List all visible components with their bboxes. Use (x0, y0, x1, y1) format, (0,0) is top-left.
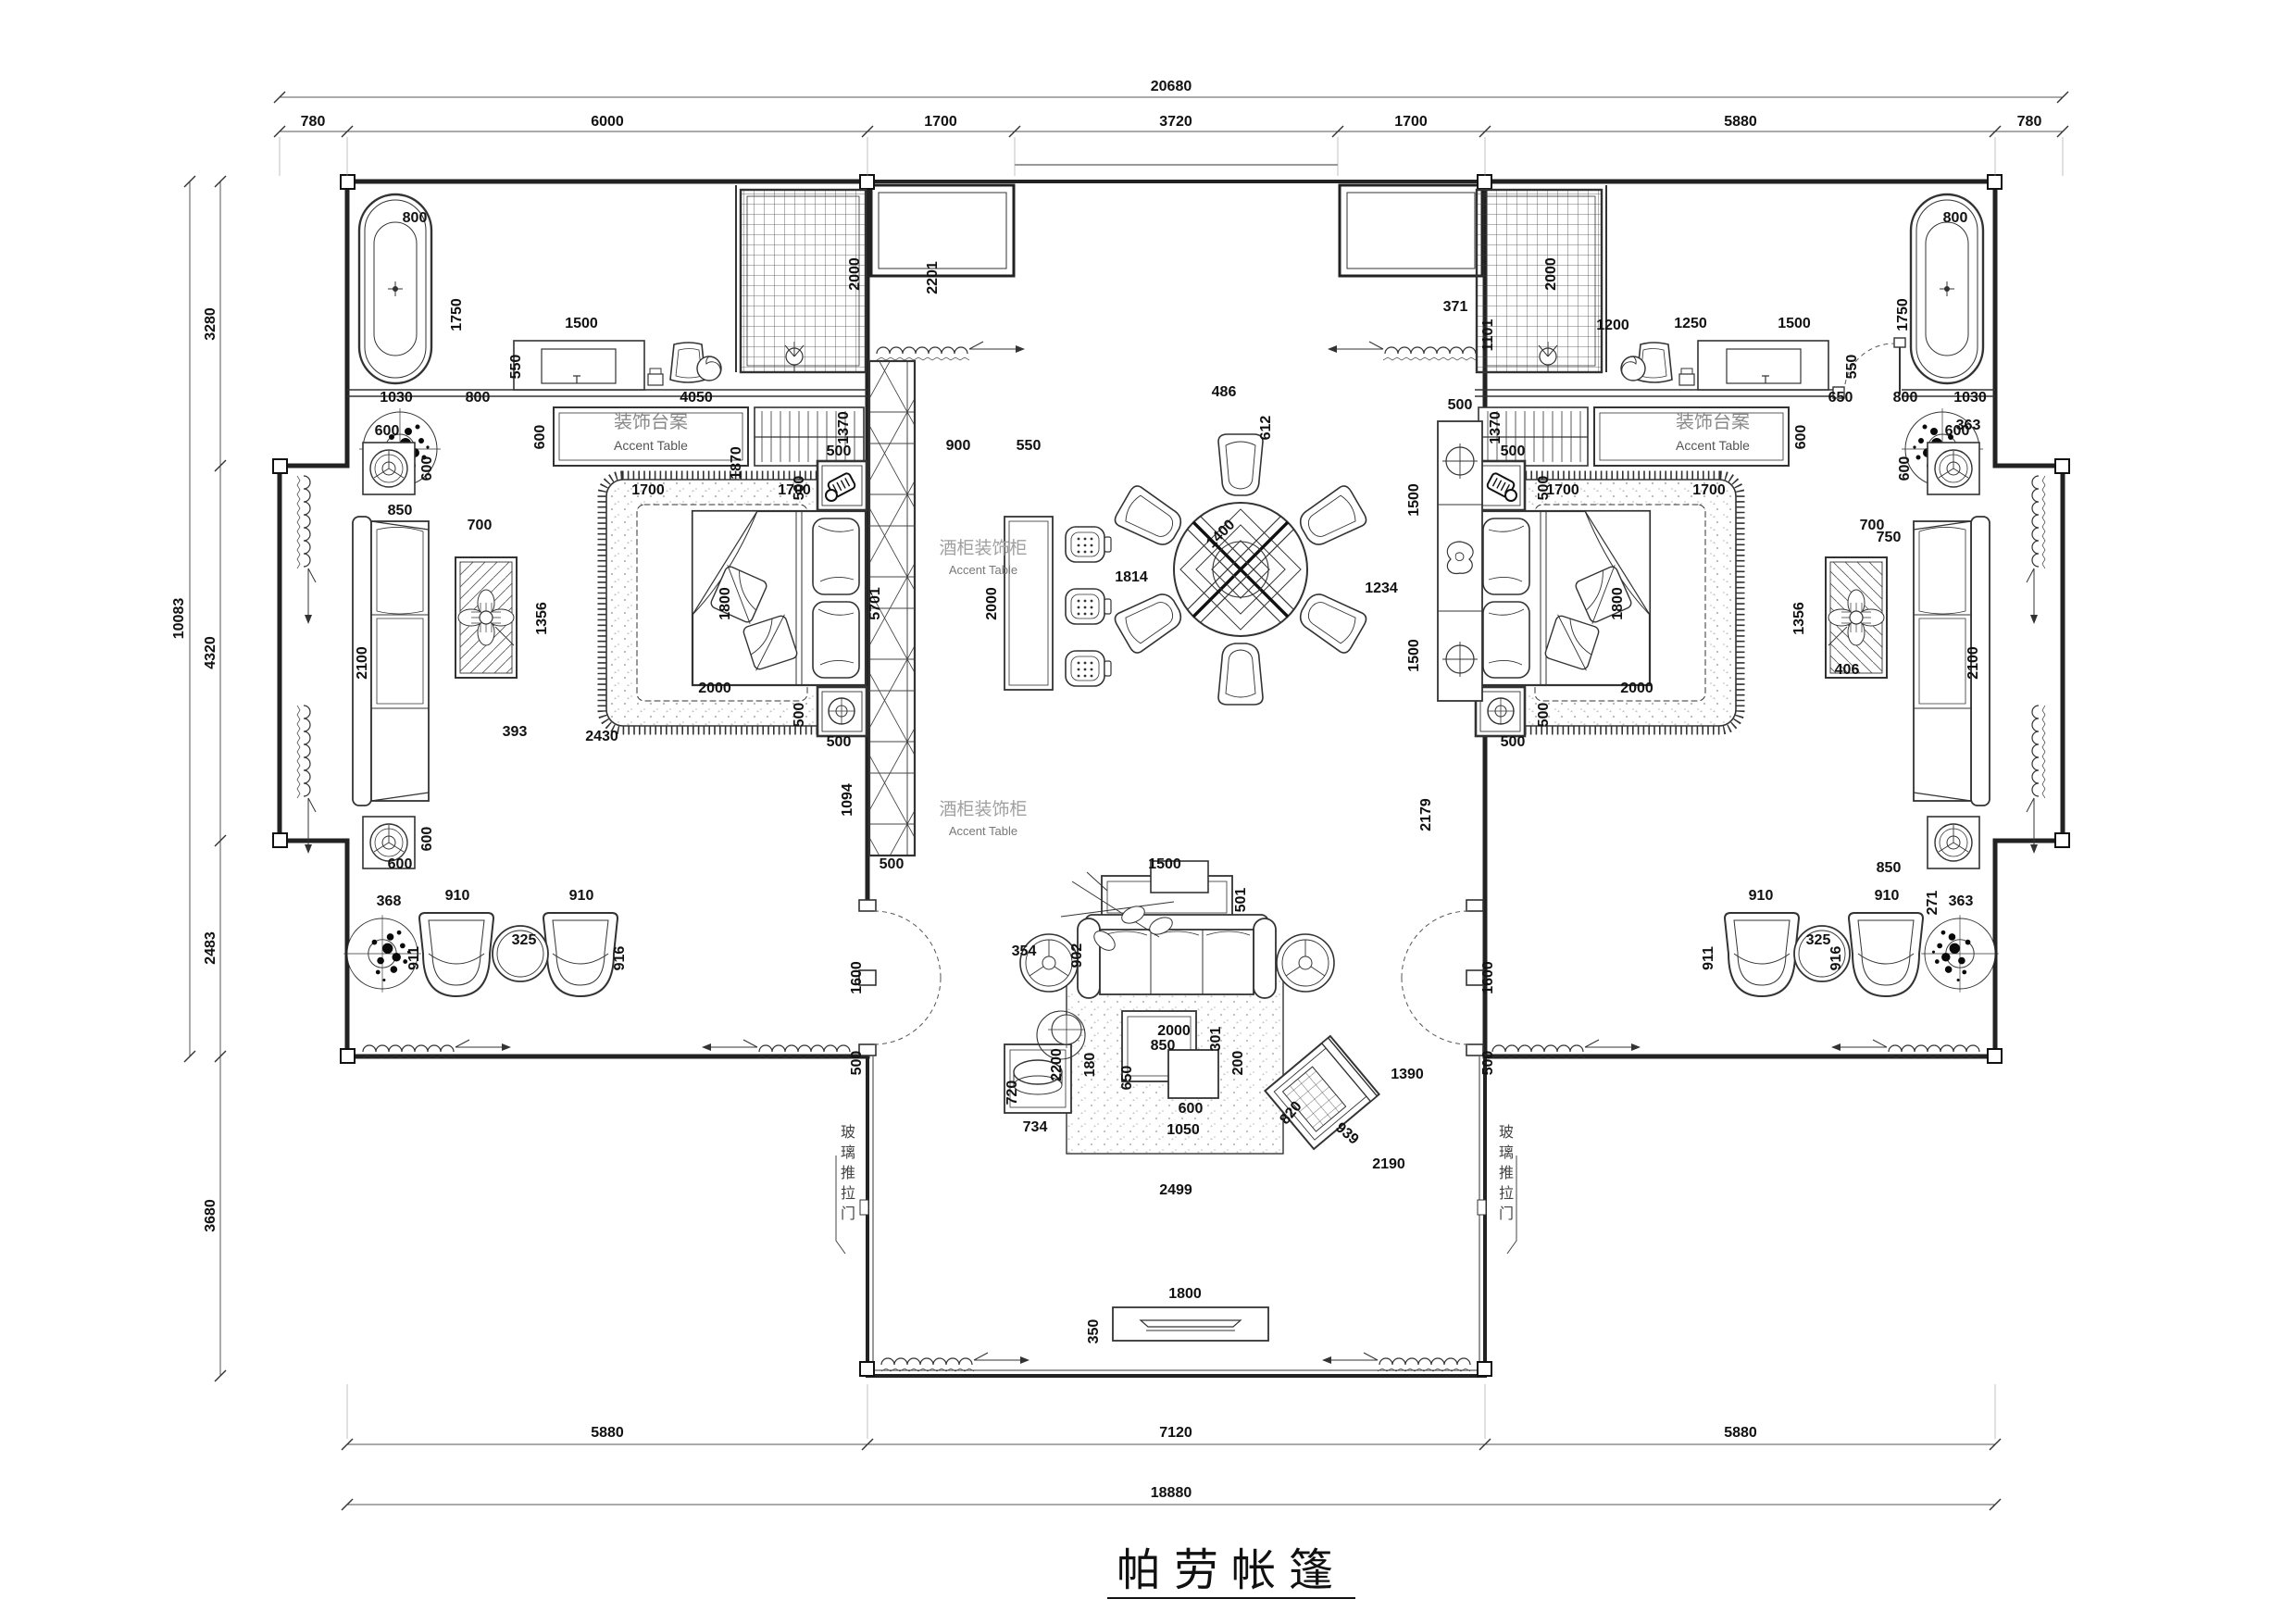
dimension-text: 354 (1012, 943, 1037, 959)
suite-right (1402, 185, 2045, 1058)
coffee-table (455, 557, 517, 678)
dimension-text: 1094 (840, 783, 855, 817)
label-text: Accent Table (949, 563, 1017, 577)
dimension-text: 325 (1806, 932, 1831, 948)
dimension-text: 550 (1844, 355, 1860, 380)
vanity (514, 341, 663, 390)
dimension-text: 850 (1877, 860, 1902, 876)
dimension-text: 500 (792, 476, 807, 501)
dimension-text: 600 (1897, 456, 1913, 481)
dimension-text: 5880 (1724, 114, 1757, 130)
dimension-text: 1800 (1168, 1286, 1202, 1302)
dimension-text: 200 (1230, 1051, 1246, 1076)
nightstand (817, 687, 867, 736)
living-sofa (1078, 915, 1276, 998)
dimension-text: 1101 (1480, 319, 1496, 352)
dimension-text: 1700 (631, 482, 665, 498)
dimension-text: 3720 (1159, 114, 1192, 130)
dimension-text: 4050 (680, 390, 713, 406)
dimension-text: 910 (569, 888, 594, 904)
dimension-text: 734 (1023, 1119, 1048, 1135)
dimension-text: 600 (419, 827, 435, 852)
dimension-text: 850 (1151, 1038, 1176, 1054)
dimension-text: 500 (1480, 1051, 1496, 1076)
dimension-text: 600 (419, 456, 435, 481)
dimension-text: 10083 (171, 598, 187, 640)
dimension-text: 900 (946, 438, 971, 454)
dimension-text: 393 (503, 724, 528, 740)
dimension-text: 301 (1208, 1027, 1224, 1052)
dimension-text: 501 (1233, 888, 1249, 913)
dimension-text: 800 (1893, 390, 1918, 406)
label-text: 装饰台案 (1676, 411, 1750, 432)
dimension-lines (190, 97, 2063, 1505)
dimension-text: 500 (792, 703, 807, 728)
dimension-text: 2200 (1049, 1048, 1065, 1081)
label-text: 装饰台案 (614, 411, 688, 432)
dimension-text: 911 (406, 946, 422, 970)
dimension-text: 1500 (1406, 483, 1422, 517)
dimension-text: 271 (1925, 891, 1940, 916)
dimension-text: 2430 (585, 729, 618, 744)
dimension-text: 1030 (1953, 390, 1987, 406)
dimension-text: 350 (1086, 1319, 1102, 1344)
label-text: Accent Table (614, 438, 688, 453)
dimension-text-layer: 2068078060001700372017005880780100833280… (171, 79, 2041, 1501)
dimension-text: 700 (1860, 518, 1885, 533)
dimension-text: 2000 (847, 257, 863, 291)
floor-plan-drawing: 2068078060001700372017005880780100833280… (0, 0, 2296, 1624)
dimension-text: 368 (377, 893, 402, 909)
dimension-text: 7120 (1159, 1425, 1192, 1441)
dimension-text: 18880 (1151, 1485, 1192, 1501)
dimension-text: 2000 (984, 587, 1000, 620)
dimension-text: 1500 (565, 316, 598, 331)
dimension-text: 1700 (1546, 482, 1579, 498)
dimension-text: 500 (1536, 703, 1552, 728)
dimension-text: 800 (466, 390, 491, 406)
dimension-text: 700 (468, 518, 493, 533)
dimension-text: 180 (1082, 1053, 1098, 1078)
dimension-text: 800 (403, 210, 428, 226)
dimension-text: 916 (612, 946, 628, 971)
dimension-text: 2499 (1159, 1182, 1192, 1198)
dimension-text: 1600 (849, 961, 865, 994)
suite-left (297, 185, 941, 1058)
dimension-text: 902 (1069, 943, 1085, 968)
floor-plan-sheet: 2068078060001700372017005880780100833280… (0, 0, 2296, 1624)
dimension-text: 486 (1212, 384, 1237, 400)
dimension-text: 500 (1448, 397, 1473, 413)
dimension-text: 500 (880, 856, 905, 872)
dimension-text: 600 (1945, 423, 1970, 439)
dimension-text: 2000 (698, 681, 731, 696)
label-text: 酒柜装饰柜 (939, 538, 1027, 558)
dimension-text: 2100 (355, 646, 370, 680)
dimension-text: 1250 (1674, 316, 1707, 331)
dimension-text: 612 (1258, 416, 1274, 441)
dimension-text: 500 (1501, 443, 1526, 459)
dimension-text: 910 (445, 888, 470, 904)
dimension-text: 2100 (1965, 646, 1981, 680)
dimension-text: 650 (1828, 390, 1853, 406)
dimension-text: 5701 (867, 587, 883, 620)
dimension-text: 1500 (1778, 316, 1811, 331)
dimension-text: 600 (1179, 1101, 1204, 1117)
label-text: 酒柜装饰柜 (939, 799, 1027, 819)
dimension-text: 1814 (1115, 569, 1148, 585)
label-text: Accent Table (949, 824, 1017, 838)
dimension-text: 500 (1501, 734, 1526, 750)
dimension-text: 911 (1701, 946, 1716, 970)
dimension-text: 5880 (591, 1425, 624, 1441)
dimension-text: 2179 (1418, 798, 1434, 831)
dimension-text: 2000 (1543, 257, 1559, 291)
dimension-text: 1750 (1895, 298, 1911, 331)
double-door (859, 900, 941, 1056)
dimension-text: 2000 (1157, 1023, 1191, 1039)
dining-table (1174, 503, 1307, 636)
dimension-text: 1370 (836, 411, 852, 444)
dimension-text: 2483 (203, 931, 218, 965)
dimension-text: 650 (1119, 1066, 1135, 1091)
dimension-text: 325 (512, 932, 537, 948)
dimension-text: 1390 (1391, 1067, 1424, 1082)
dimension-text: 500 (849, 1051, 865, 1076)
drawing-title: 帕劳帐篷 (1117, 1544, 1346, 1596)
dimension-text: 4320 (203, 636, 218, 669)
dimension-text: 600 (388, 856, 413, 872)
dimension-text: 1700 (1692, 482, 1726, 498)
dimension-text: 800 (1943, 210, 1968, 226)
dimension-text: 6000 (591, 114, 624, 130)
dimension-text: 1234 (1365, 581, 1398, 596)
dimension-text: 916 (1828, 946, 1844, 971)
dimension-text: 5880 (1724, 1425, 1757, 1441)
dimension-text: 550 (1017, 438, 1042, 454)
dimension-text: 20680 (1151, 79, 1192, 94)
dimension-text: 1700 (924, 114, 957, 130)
dimension-text: 1800 (1610, 587, 1626, 620)
dimension-text: 1700 (1394, 114, 1428, 130)
dimension-text: 406 (1835, 662, 1860, 678)
dimension-text: 1370 (1488, 411, 1504, 444)
dimension-text: 1500 (1406, 639, 1422, 672)
label-text: 玻璃推拉门 (1499, 1124, 1514, 1222)
dimension-text: 3680 (203, 1199, 218, 1232)
dimension-text: 371 (1443, 299, 1468, 315)
display-shelf (1438, 421, 1482, 701)
dimension-text: 1750 (449, 298, 465, 331)
terrace-console (1113, 1307, 1268, 1341)
label-text: 玻璃推拉门 (841, 1124, 855, 1222)
dimension-text: 1356 (534, 602, 550, 635)
dimension-text: 720 (1004, 1081, 1020, 1106)
dimension-text: 2190 (1372, 1156, 1405, 1172)
nightstand (817, 461, 867, 510)
dimension-text: 1200 (1596, 318, 1629, 333)
dimension-text: 500 (827, 443, 852, 459)
dimension-text: 910 (1749, 888, 1774, 904)
dimension-text: 1356 (1791, 602, 1807, 635)
dimension-text: 2201 (925, 261, 941, 294)
label-text: Accent Table (1676, 438, 1750, 453)
dimension-text: 780 (301, 114, 326, 130)
dimension-text: 1500 (1148, 856, 1181, 872)
dimension-text: 1800 (717, 587, 733, 620)
dimension-text: 3280 (203, 307, 218, 341)
shower (736, 185, 866, 372)
dimension-text: 600 (532, 425, 548, 450)
dimension-text: 780 (2017, 114, 2042, 130)
dimension-text: 1600 (1480, 961, 1496, 994)
dimension-text: 550 (508, 355, 524, 380)
dimension-text: 1050 (1167, 1122, 1200, 1138)
dimension-text: 363 (1949, 893, 1974, 909)
dimension-text: 500 (827, 734, 852, 750)
dimension-text: 1030 (380, 390, 413, 406)
dimension-text: 600 (1793, 425, 1809, 450)
dimension-ticks (184, 92, 2068, 1510)
dimension-text: 910 (1875, 888, 1900, 904)
dimension-text: 850 (388, 503, 413, 518)
dimension-text: 600 (375, 423, 400, 439)
towel-roll (697, 356, 721, 381)
dimension-text: 2000 (1620, 681, 1653, 696)
dimension-text: 1870 (729, 446, 744, 480)
